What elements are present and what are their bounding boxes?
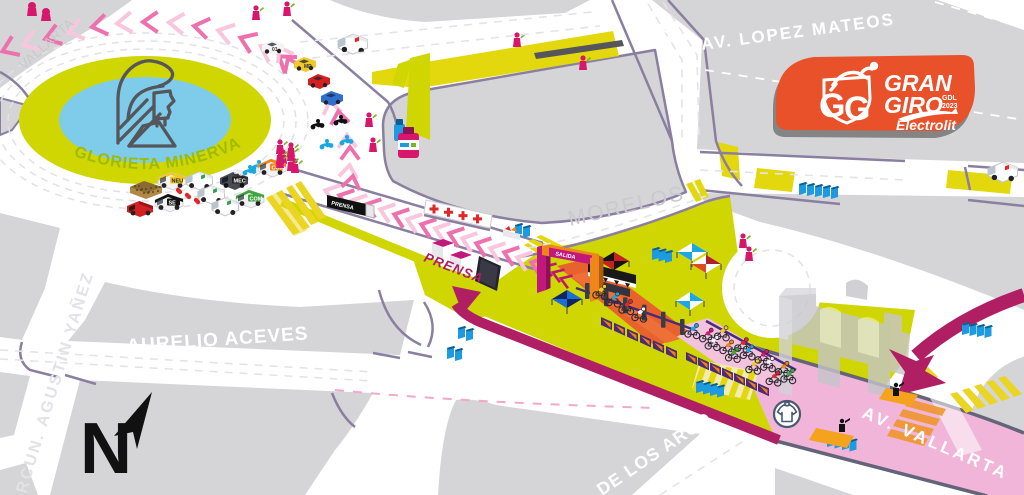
svg-text:SE: SE [169,201,177,207]
svg-text:MD: MD [304,64,312,70]
svg-text:COM: COM [250,197,263,203]
svg-text:G: G [819,87,845,125]
svg-text:NEU: NEU [172,179,184,185]
svg-text:N: N [80,409,132,489]
svg-text:01: 01 [272,47,278,53]
svg-text:G: G [844,90,870,128]
svg-text:MEC: MEC [234,179,246,185]
svg-text:GDL: GDL [942,95,958,102]
svg-text:Electrolit: Electrolit [896,117,957,133]
